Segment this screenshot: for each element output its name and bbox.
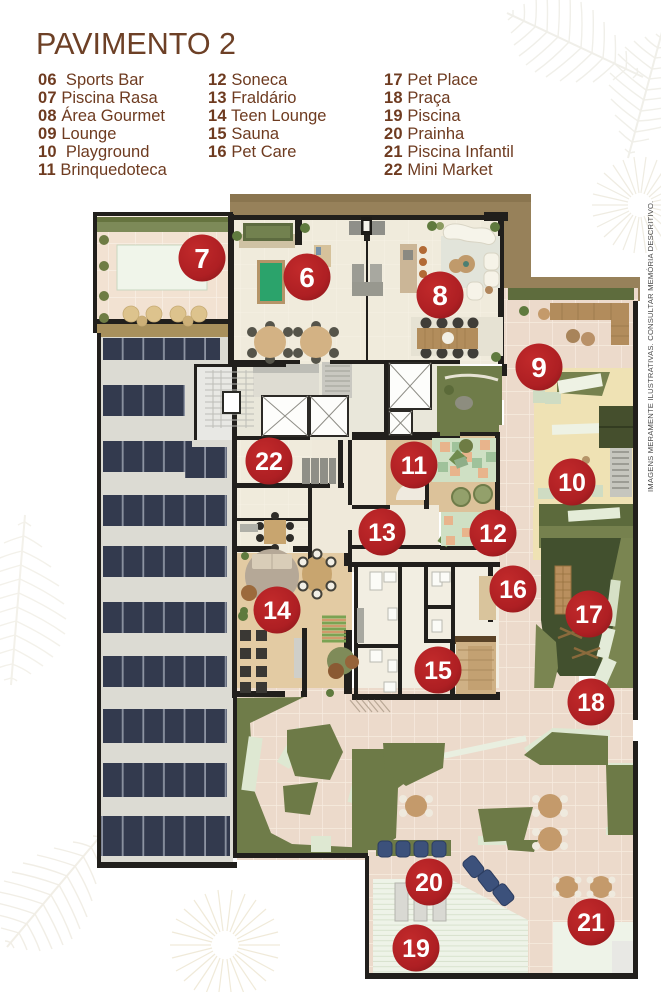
svg-text:8: 8 — [432, 280, 448, 311]
svg-text:18: 18 — [577, 689, 605, 717]
svg-text:16: 16 — [499, 576, 527, 604]
svg-text:9: 9 — [531, 352, 547, 383]
svg-text:7: 7 — [194, 243, 210, 274]
svg-text:14: 14 — [263, 597, 291, 625]
svg-text:12: 12 — [479, 520, 507, 548]
svg-text:20: 20 — [415, 869, 443, 897]
svg-text:6: 6 — [299, 262, 315, 293]
svg-text:13: 13 — [368, 519, 396, 547]
svg-text:10: 10 — [558, 469, 586, 497]
svg-text:15: 15 — [424, 657, 452, 685]
svg-text:17: 17 — [575, 601, 603, 629]
svg-text:22: 22 — [255, 448, 283, 476]
svg-text:21: 21 — [577, 909, 605, 937]
svg-text:19: 19 — [402, 935, 430, 963]
svg-text:11: 11 — [401, 452, 428, 480]
